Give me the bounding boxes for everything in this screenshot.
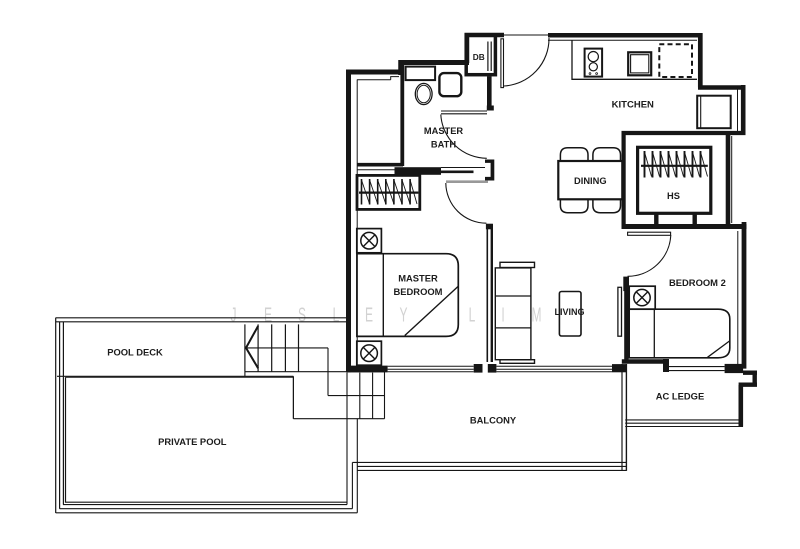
svg-text:Y: Y [399,305,407,327]
svg-text:J: J [230,305,236,327]
svg-text:BALCONY: BALCONY [470,415,517,426]
svg-text:MASTER: MASTER [398,272,438,283]
svg-text:PRIVATE POOL: PRIVATE POOL [158,436,227,447]
svg-text:E: E [264,305,272,327]
svg-text:KITCHEN: KITCHEN [612,100,654,111]
svg-text:BATH: BATH [431,140,456,150]
svg-text:POOL DECK: POOL DECK [107,347,163,358]
svg-text:E: E [365,305,373,327]
svg-text:L: L [469,305,476,327]
svg-text:LIVING: LIVING [554,307,584,317]
svg-text:I: I [501,305,504,327]
svg-text:BEDROOM: BEDROOM [394,286,443,297]
svg-text:S: S [298,305,306,327]
svg-text:DB: DB [473,52,485,62]
svg-text:L: L [333,305,340,327]
svg-text:HS: HS [667,191,680,201]
svg-text:MASTER: MASTER [424,126,464,136]
svg-text:BEDROOM 2: BEDROOM 2 [669,277,726,288]
svg-text:DINING: DINING [574,176,607,186]
svg-text:AC LEDGE: AC LEDGE [656,391,704,402]
svg-text:M: M [532,305,542,327]
